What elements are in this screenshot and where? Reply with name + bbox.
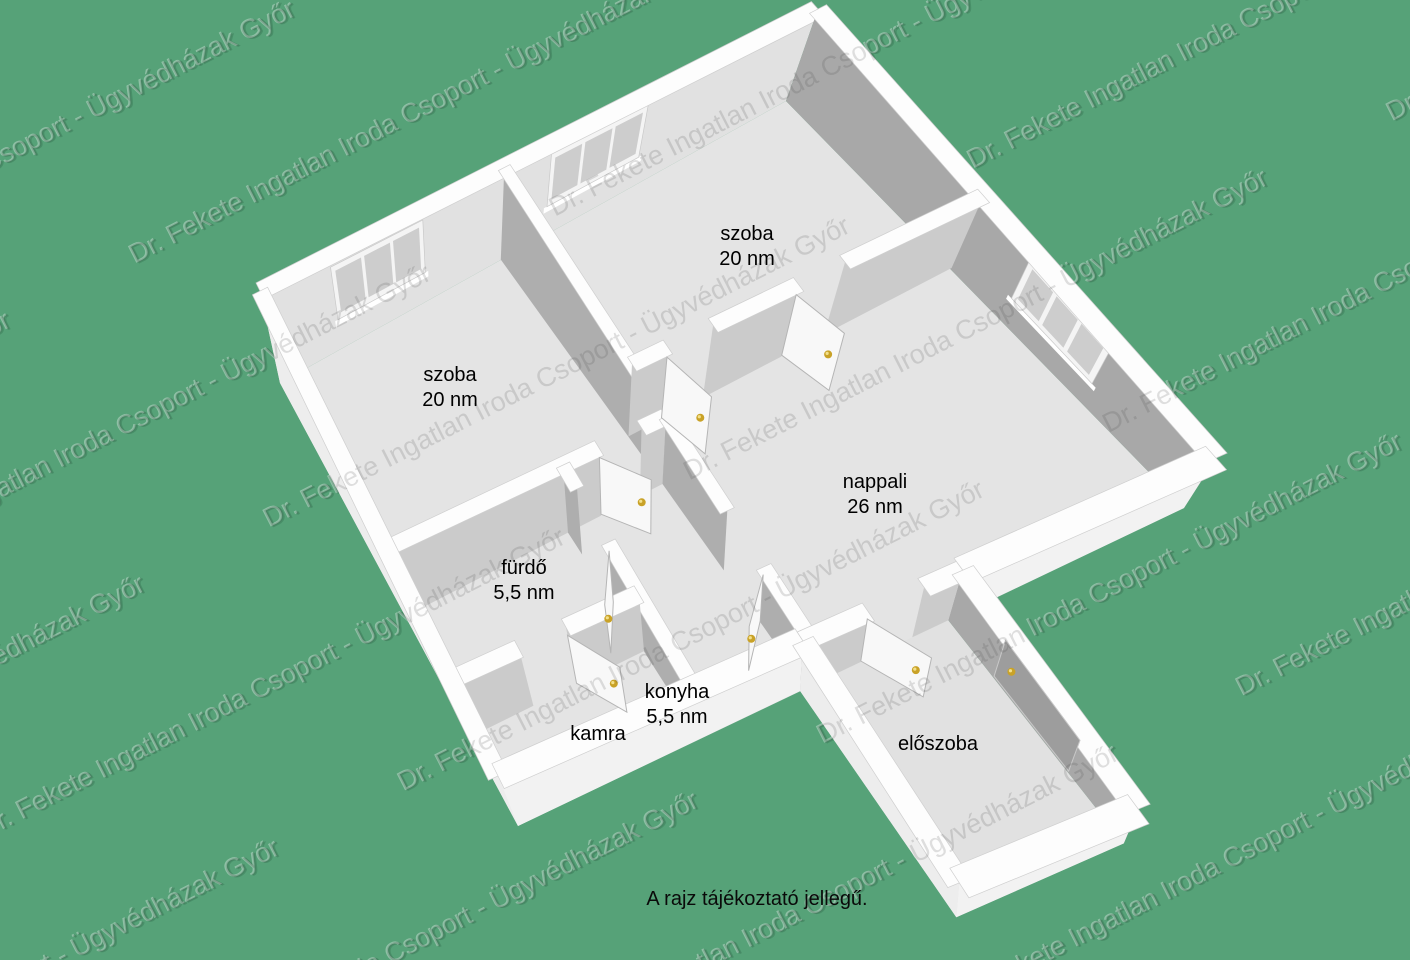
floorplan-rendering: Dr. Fekete Ingatlan Iroda Csoport - Ügyv… — [0, 0, 1410, 960]
disclaimer-caption: A rajz tájékoztató jellegű. — [646, 888, 867, 911]
door-handle-highlight — [1009, 669, 1012, 672]
floorplan-page: Dr. Fekete Ingatlan Iroda Csoport - Ügyv… — [0, 0, 1410, 960]
door-handle-highlight — [639, 500, 642, 503]
door-handle-highlight — [826, 352, 829, 355]
door-handle-highlight — [606, 616, 609, 619]
door-handle-highlight — [749, 636, 752, 639]
door-handle-highlight — [698, 415, 701, 418]
